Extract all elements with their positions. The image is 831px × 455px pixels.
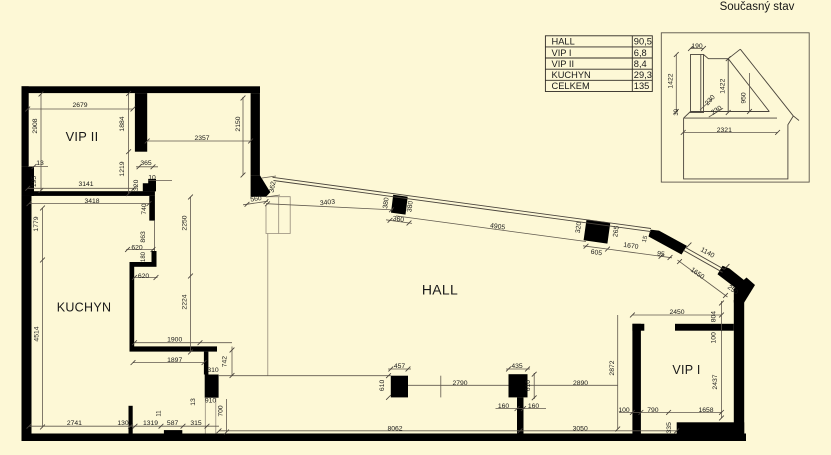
svg-text:8062: 8062 bbox=[387, 425, 402, 432]
svg-text:13: 13 bbox=[190, 398, 197, 406]
svg-text:100: 100 bbox=[618, 407, 630, 414]
svg-text:130: 130 bbox=[117, 420, 129, 427]
svg-text:3050: 3050 bbox=[573, 425, 588, 432]
svg-text:2890: 2890 bbox=[573, 380, 588, 387]
svg-text:620: 620 bbox=[138, 273, 150, 280]
svg-text:2437: 2437 bbox=[712, 374, 719, 389]
svg-text:910: 910 bbox=[205, 398, 217, 405]
svg-text:457: 457 bbox=[394, 363, 406, 370]
svg-text:587: 587 bbox=[167, 420, 179, 427]
svg-text:620: 620 bbox=[131, 244, 143, 251]
svg-text:8,4: 8,4 bbox=[634, 59, 647, 69]
svg-text:HALL: HALL bbox=[422, 282, 458, 298]
svg-text:320: 320 bbox=[133, 179, 140, 191]
svg-text:11: 11 bbox=[157, 410, 163, 417]
svg-text:610: 610 bbox=[525, 380, 532, 392]
svg-text:790: 790 bbox=[647, 407, 659, 414]
svg-text:950: 950 bbox=[741, 92, 748, 104]
svg-text:13: 13 bbox=[36, 160, 44, 167]
svg-text:4514: 4514 bbox=[34, 326, 41, 341]
svg-text:1897: 1897 bbox=[167, 357, 182, 364]
svg-text:29,3: 29,3 bbox=[634, 70, 652, 80]
svg-text:335: 335 bbox=[666, 422, 673, 434]
svg-text:Současný stav: Současný stav bbox=[720, 1, 795, 13]
svg-text:160: 160 bbox=[528, 403, 540, 410]
svg-text:742: 742 bbox=[222, 356, 229, 368]
svg-text:195: 195 bbox=[31, 176, 38, 188]
svg-text:2224: 2224 bbox=[182, 294, 189, 309]
svg-text:95: 95 bbox=[657, 250, 666, 258]
svg-text:VIP II: VIP II bbox=[66, 129, 99, 144]
svg-text:863: 863 bbox=[140, 231, 147, 243]
svg-text:2321: 2321 bbox=[717, 127, 732, 134]
svg-text:1900: 1900 bbox=[167, 337, 182, 344]
svg-text:1884: 1884 bbox=[119, 116, 126, 131]
svg-text:1779: 1779 bbox=[33, 216, 40, 231]
svg-text:100: 100 bbox=[711, 332, 718, 344]
svg-text:1658: 1658 bbox=[698, 407, 713, 414]
svg-text:30: 30 bbox=[674, 108, 680, 115]
svg-text:180: 180 bbox=[141, 251, 147, 262]
svg-text:VIP I: VIP I bbox=[552, 48, 572, 58]
svg-text:CELKEM: CELKEM bbox=[552, 81, 590, 91]
svg-text:KUCHYN: KUCHYN bbox=[57, 301, 112, 315]
svg-text:KUCHYN: KUCHYN bbox=[552, 70, 591, 80]
svg-text:VIP I: VIP I bbox=[672, 363, 700, 377]
svg-text:365: 365 bbox=[140, 160, 152, 167]
svg-text:2450: 2450 bbox=[669, 309, 684, 316]
svg-text:2250: 2250 bbox=[182, 215, 189, 230]
svg-text:10: 10 bbox=[148, 174, 156, 181]
svg-text:2872: 2872 bbox=[609, 360, 616, 375]
svg-text:2908: 2908 bbox=[32, 118, 39, 133]
svg-text:435: 435 bbox=[511, 363, 523, 370]
svg-text:2150: 2150 bbox=[235, 116, 242, 131]
svg-text:3141: 3141 bbox=[78, 181, 93, 188]
svg-text:740: 740 bbox=[141, 203, 148, 215]
svg-text:2741: 2741 bbox=[67, 420, 82, 427]
svg-text:3418: 3418 bbox=[84, 198, 99, 205]
svg-text:1219: 1219 bbox=[119, 161, 126, 176]
svg-text:190: 190 bbox=[691, 43, 703, 50]
svg-text:160: 160 bbox=[498, 403, 510, 410]
svg-text:1422: 1422 bbox=[719, 78, 726, 93]
svg-text:HALL: HALL bbox=[552, 37, 575, 47]
svg-text:1319: 1319 bbox=[143, 420, 158, 427]
svg-text:315: 315 bbox=[190, 420, 202, 427]
svg-text:310: 310 bbox=[207, 367, 219, 374]
svg-text:1422: 1422 bbox=[667, 73, 674, 88]
svg-text:804: 804 bbox=[711, 311, 718, 323]
svg-text:700: 700 bbox=[218, 405, 225, 417]
svg-text:2790: 2790 bbox=[452, 380, 467, 387]
svg-text:135: 135 bbox=[634, 81, 650, 91]
svg-text:90,5: 90,5 bbox=[634, 37, 652, 47]
svg-text:610: 610 bbox=[379, 380, 386, 392]
svg-text:2679: 2679 bbox=[72, 102, 87, 109]
svg-text:6,8: 6,8 bbox=[634, 48, 647, 58]
svg-text:VIP II: VIP II bbox=[552, 59, 575, 69]
svg-text:2357: 2357 bbox=[194, 135, 209, 142]
